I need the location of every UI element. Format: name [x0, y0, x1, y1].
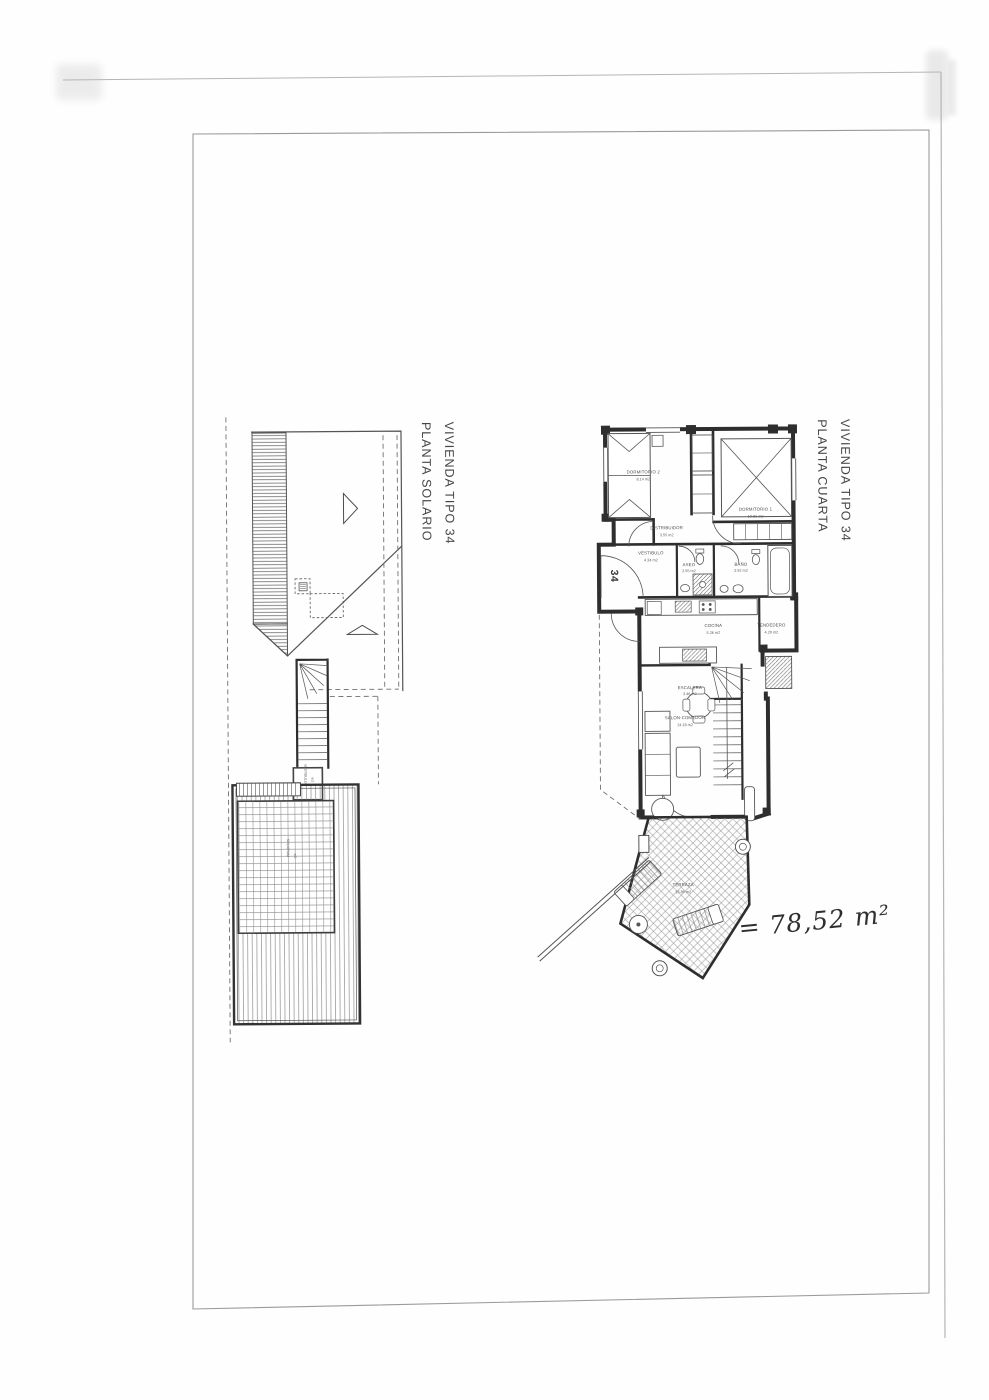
scan-artifacts	[56, 50, 956, 1338]
bathtub	[768, 545, 792, 596]
kitchen-sink	[675, 601, 691, 612]
planter	[735, 839, 750, 854]
sheet-frame	[193, 130, 929, 1309]
label-tendedero: TENDEDERO	[757, 622, 786, 627]
landing-label: VESTIBULO	[303, 764, 307, 784]
label-terraza: TERRAZA	[673, 882, 694, 887]
bano-fixtures	[720, 545, 792, 597]
cuarta-title-line1: PLANTA CUARTA	[815, 419, 830, 532]
planter-2	[652, 961, 667, 976]
sofa-corner	[645, 711, 670, 731]
bed-dormitorio2	[608, 433, 664, 517]
side-table	[676, 747, 700, 777]
floorplan-drawing: VESTIBULO m2 SOLARIUM m2 PLANTA SOLARIO …	[0, 0, 989, 1400]
solario-title-line2: VIVIENDA TIPO 34	[442, 422, 457, 545]
terraza	[537, 817, 752, 979]
svg-text:3.46 m2: 3.46 m2	[683, 692, 697, 696]
label-distribuidor: DISTRIBUIDOR	[650, 525, 683, 530]
label-escalera: ESCALERA	[678, 685, 702, 690]
plan-solario: VESTIBULO m2 SOLARIUM m2 PLANTA SOLARIO …	[226, 416, 460, 1043]
property-dashed-line	[226, 417, 230, 1042]
svg-text:14.18 m2: 14.18 m2	[677, 723, 693, 727]
toilet	[752, 555, 759, 565]
solarium-label: SOLARIUM	[286, 839, 290, 857]
label-dormitorio2: DORMITORIO 2	[627, 469, 661, 474]
label-dormitorio1: DORMITORIO 1	[739, 507, 773, 512]
sofa	[645, 733, 670, 795]
stove	[699, 601, 715, 613]
sink	[733, 585, 743, 593]
roof-ridge	[287, 546, 403, 656]
label-bano: BAÑO	[735, 562, 748, 567]
salon-furniture	[645, 687, 755, 822]
roof-slope-arrow	[343, 493, 357, 523]
entrance-door-arc	[601, 555, 643, 597]
scanned-floorplan-page: VESTIBULO m2 SOLARIUM m2 PLANTA SOLARIO …	[0, 0, 989, 1400]
label-salon: SALON-COMEDOR	[665, 715, 705, 720]
roof-chimney	[295, 579, 343, 618]
solario-title-line1: PLANTA SOLARIO	[419, 422, 434, 542]
facade-dashed	[599, 614, 640, 819]
svg-text:2.55 m2: 2.55 m2	[682, 569, 696, 573]
handwritten-area-note: = 78,52 m²	[737, 900, 891, 943]
cuarta-staircase	[712, 667, 753, 785]
svg-text:13.85 m2: 13.85 m2	[675, 890, 691, 894]
label-vestibulo: VESTIBULO	[638, 550, 664, 555]
svg-text:3.55 m2: 3.55 m2	[660, 533, 674, 537]
roof-slope-arrow-2	[347, 625, 377, 634]
svg-text:8.14 m2: 8.14 m2	[636, 477, 650, 481]
solarium-area: m2	[293, 853, 297, 858]
svg-text:4.29 m2: 4.29 m2	[765, 630, 779, 634]
svg-text:5.26 m2: 5.26 m2	[707, 631, 721, 635]
svg-text:3.92 m2: 3.92 m2	[734, 569, 748, 573]
solarium-tiles	[239, 802, 334, 933]
label-aseo: ASEO	[683, 562, 696, 567]
plan-cuarta: DORMITORIO 2 8.14 m2 DORMITORIO 1 10.81 …	[534, 419, 856, 979]
roof-hatch-strip	[252, 433, 287, 624]
cuarta-title-line2: VIVIENDA TIPO 34	[838, 419, 853, 542]
bed-dormitorio1	[721, 438, 792, 539]
closet	[734, 523, 792, 539]
sheet-content: VESTIBULO m2 SOLARIUM m2 PLANTA SOLARIO …	[226, 413, 892, 1043]
landing-area: m2	[310, 777, 314, 782]
unit-number: 34	[608, 570, 620, 583]
solarium-terrace: SOLARIUM m2	[232, 782, 360, 1024]
door-arcs	[601, 516, 743, 818]
wardrobe	[692, 435, 713, 513]
svg-text:4.34 m2: 4.34 m2	[644, 558, 658, 562]
roof-plan	[251, 431, 403, 692]
label-cocina: COCINA	[705, 623, 723, 628]
svg-text:10.81 m2: 10.81 m2	[748, 515, 764, 519]
kitchen-counters	[645, 599, 757, 664]
bidet	[720, 585, 728, 592]
shaft	[766, 656, 792, 688]
